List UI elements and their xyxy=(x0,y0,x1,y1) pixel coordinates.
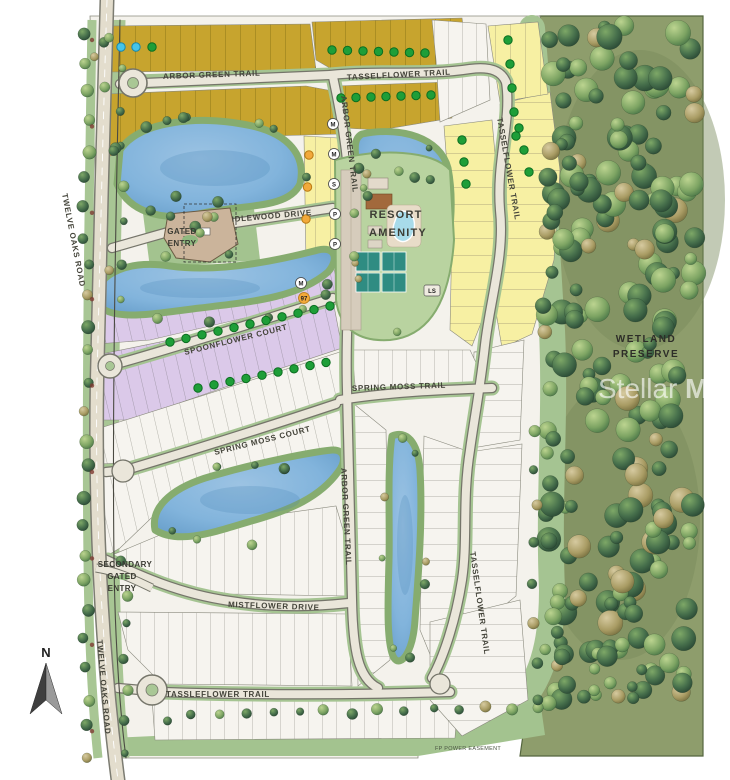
tree-icon xyxy=(83,345,93,355)
tree-icon xyxy=(585,297,610,322)
tree-icon xyxy=(84,260,94,270)
tree-icon xyxy=(645,138,661,154)
tree-icon xyxy=(321,290,331,300)
tree-icon xyxy=(412,450,419,457)
tree-icon xyxy=(659,404,683,428)
badge-m1: M xyxy=(331,123,336,129)
tree-icon xyxy=(604,677,616,689)
tree-icon xyxy=(163,717,172,726)
lot-status-dot-green xyxy=(510,108,518,116)
tree-icon xyxy=(619,52,637,70)
tree-icon xyxy=(546,266,559,279)
lot-status-dot-green xyxy=(520,146,528,154)
tree-icon xyxy=(371,149,381,159)
lot-status-dot-green xyxy=(515,124,523,132)
secondary-entry-label-3: ENTRY xyxy=(108,584,137,593)
tree-icon xyxy=(681,493,704,516)
tree-icon xyxy=(656,105,671,120)
tree-icon xyxy=(146,206,156,216)
tree-icon xyxy=(529,465,538,474)
tree-icon xyxy=(556,93,572,109)
bush-icon xyxy=(90,383,94,387)
lot-status-dot-green xyxy=(506,60,514,68)
tree-icon xyxy=(540,644,551,655)
lot-status-dot-green xyxy=(328,46,336,54)
tree-icon xyxy=(625,605,643,623)
tree-icon xyxy=(109,146,119,156)
tree-icon xyxy=(242,709,252,719)
tree-icon xyxy=(597,646,618,667)
tree-icon xyxy=(78,633,88,643)
power-easement-label: FP POWER EASEMENT xyxy=(435,746,501,752)
tree-icon xyxy=(77,200,89,212)
tree-icon xyxy=(610,531,623,544)
tree-icon xyxy=(631,155,647,171)
tree-icon xyxy=(78,28,90,40)
tree-icon xyxy=(422,558,430,566)
badge-p2: P xyxy=(333,243,337,249)
tree-icon xyxy=(659,653,679,673)
tree-icon xyxy=(680,281,698,299)
tree-icon xyxy=(350,209,359,218)
tree-icon xyxy=(202,212,212,222)
tree-icon xyxy=(186,710,195,719)
tree-icon xyxy=(506,704,518,716)
culdesac-bottom-east xyxy=(430,674,450,694)
tree-icon xyxy=(318,704,329,715)
tree-icon xyxy=(539,168,557,186)
tree-icon xyxy=(597,24,623,50)
tree-icon xyxy=(212,196,223,207)
lot-status-dot-orange xyxy=(303,183,311,191)
bush-icon xyxy=(90,297,94,301)
wetland-preserve-label-1: WETLAND xyxy=(616,334,677,345)
tree-icon xyxy=(393,328,401,336)
tree-icon xyxy=(426,175,435,184)
gated-entry-label-2: ENTRY xyxy=(168,239,197,248)
bush-icon xyxy=(90,211,94,215)
tree-icon xyxy=(527,579,537,589)
bush-icon xyxy=(90,643,94,647)
tree-icon xyxy=(661,441,678,458)
tree-icon xyxy=(81,84,94,97)
tree-icon xyxy=(349,251,359,261)
lot-status-dot-green xyxy=(258,371,266,379)
tree-icon xyxy=(163,116,172,125)
lot-status-dot-green xyxy=(512,132,520,140)
badge-97: 97 xyxy=(301,297,308,303)
lot-status-dot-green xyxy=(290,365,298,373)
tree-icon xyxy=(545,608,562,625)
tree-icon xyxy=(302,173,310,181)
lot-status-dot-green xyxy=(382,92,390,100)
secondary-entry-label-1: SECONDARY xyxy=(98,560,153,569)
wetland-preserve-label-2: PRESERVE xyxy=(613,349,679,360)
tree-icon xyxy=(398,434,407,443)
tree-icon xyxy=(565,500,578,513)
tree-icon xyxy=(84,115,95,126)
tree-icon xyxy=(570,284,582,296)
secondary-entry-label-2: GATED xyxy=(107,572,136,581)
tree-icon xyxy=(611,118,625,132)
tree-icon xyxy=(650,190,672,212)
tree-icon xyxy=(120,218,127,225)
tree-icon xyxy=(80,550,91,561)
tree-icon xyxy=(529,425,541,437)
tree-icon xyxy=(119,715,129,725)
tree-icon xyxy=(123,619,131,627)
lot-status-dot-green xyxy=(359,47,367,55)
tree-icon xyxy=(541,32,557,48)
tree-icon xyxy=(649,433,662,446)
tree-icon xyxy=(118,181,129,192)
tree-icon xyxy=(685,253,697,265)
tree-icon xyxy=(558,25,580,47)
watermark-mls: MLS xyxy=(685,373,730,404)
tree-icon xyxy=(560,449,574,463)
tree-icon xyxy=(541,533,557,549)
tree-icon xyxy=(363,170,372,179)
tree-icon xyxy=(554,649,570,665)
tree-icon xyxy=(547,204,563,220)
lot-status-dot-green xyxy=(230,323,238,331)
tree-icon xyxy=(627,682,637,692)
tree-icon xyxy=(570,590,587,607)
tree-icon xyxy=(611,689,625,703)
tree-icon xyxy=(589,89,604,104)
lot-status-dot-green xyxy=(525,168,533,176)
tree-icon xyxy=(532,500,543,511)
lot-status-dot-green xyxy=(210,381,218,389)
tree-icon xyxy=(178,112,189,123)
tree-icon xyxy=(637,665,648,676)
tree-icon xyxy=(676,598,698,620)
tree-icon xyxy=(363,191,373,201)
tree-icon xyxy=(347,709,358,720)
lot-status-dot-green xyxy=(214,327,222,335)
tree-icon xyxy=(551,626,564,639)
tree-icon xyxy=(82,753,92,763)
tree-icon xyxy=(104,33,113,42)
tree-icon xyxy=(355,275,362,282)
badge-p1: P xyxy=(333,213,337,219)
tree-icon xyxy=(77,491,91,505)
lot-status-dot-green xyxy=(246,320,254,328)
lot-status-dot-green xyxy=(508,84,516,92)
tree-icon xyxy=(166,212,175,221)
tree-icon xyxy=(596,160,621,185)
tree-icon xyxy=(105,266,114,275)
tree-icon xyxy=(100,82,110,92)
tree-icon xyxy=(81,320,95,334)
lot-status-dot-green xyxy=(278,313,286,321)
lot-status-dot-green xyxy=(326,302,334,310)
bush-icon xyxy=(90,124,94,128)
tree-icon xyxy=(681,261,706,286)
bush-icon xyxy=(90,556,94,560)
tree-icon xyxy=(672,626,696,650)
tree-icon xyxy=(629,190,649,210)
tree-icon xyxy=(533,695,543,705)
tree-icon xyxy=(535,298,551,314)
tree-icon xyxy=(213,463,221,471)
tree-icon xyxy=(390,645,397,652)
tree-icon xyxy=(635,239,655,259)
tree-icon xyxy=(611,570,634,593)
lot-status-dot-green xyxy=(242,374,250,382)
tree-icon xyxy=(569,116,583,130)
tree-icon xyxy=(77,573,90,586)
tree-icon xyxy=(576,387,594,405)
lot-status-dot-green xyxy=(148,43,156,51)
tree-icon xyxy=(589,664,600,675)
lot-status-dot-green xyxy=(412,91,420,99)
tree-icon xyxy=(685,228,705,248)
tree-icon xyxy=(121,750,128,757)
tree-icon xyxy=(679,172,703,196)
tree-icon xyxy=(528,617,540,629)
tree-icon xyxy=(251,462,258,469)
tree-icon xyxy=(572,339,593,360)
tree-icon xyxy=(80,662,90,672)
tree-icon xyxy=(379,555,385,561)
tree-icon xyxy=(624,298,648,322)
watermark-stellar: Stellar xyxy=(598,373,677,404)
tree-icon xyxy=(410,172,420,182)
lot-status-dot-green xyxy=(182,334,190,342)
tree-icon xyxy=(161,251,171,261)
tree-icon xyxy=(567,535,590,558)
lot-status-dot-green xyxy=(405,48,413,56)
tree-icon xyxy=(542,142,560,160)
tree-icon xyxy=(542,476,558,492)
tree-icon xyxy=(90,53,98,61)
tree-icon xyxy=(546,431,561,446)
tree-icon xyxy=(204,317,215,328)
tree-icon xyxy=(581,239,596,254)
tree-icon xyxy=(480,701,491,712)
tree-icon xyxy=(455,705,464,714)
tree-icon xyxy=(540,492,565,517)
lot-status-dot-green xyxy=(322,358,330,366)
tree-icon xyxy=(360,184,367,191)
tree-icon xyxy=(215,710,224,719)
tree-icon xyxy=(152,313,162,323)
tree-icon xyxy=(255,119,264,128)
tree-icon xyxy=(650,561,668,579)
tree-icon xyxy=(371,703,383,715)
tree-icon xyxy=(529,537,539,547)
tree-icon xyxy=(562,156,577,171)
badge-s: S xyxy=(332,183,336,189)
lot-status-dot-green xyxy=(390,48,398,56)
tree-icon xyxy=(651,267,676,292)
tree-icon xyxy=(195,228,204,237)
lot-status-dot-green xyxy=(294,309,302,317)
badge-lift-station: LS xyxy=(428,289,436,295)
tree-icon xyxy=(541,447,554,460)
tree-icon xyxy=(405,653,415,663)
tree-icon xyxy=(117,296,124,303)
tree-icon xyxy=(615,638,630,653)
tree-icon xyxy=(552,353,576,377)
tree-icon xyxy=(193,536,201,544)
tree-icon xyxy=(665,20,690,45)
badge-m2: M xyxy=(332,153,337,159)
tree-icon xyxy=(79,406,89,416)
tree-icon xyxy=(322,279,332,289)
tree-icon xyxy=(117,260,127,270)
lot-status-dot-green xyxy=(421,49,429,57)
lot-status-dot-cyan xyxy=(117,43,125,51)
tree-icon xyxy=(247,540,257,550)
tree-icon xyxy=(558,676,576,694)
tree-icon xyxy=(686,86,702,102)
bush-icon xyxy=(90,729,94,733)
lot-status-dot-green xyxy=(306,361,314,369)
tree-icon xyxy=(565,310,583,328)
tree-icon xyxy=(420,579,430,589)
resort-amenity-label-2: AMENITY xyxy=(369,227,427,239)
gated-entry-label-1: GATED xyxy=(167,227,196,236)
lot-status-dot-green xyxy=(310,305,318,313)
tree-icon xyxy=(553,229,574,250)
tree-icon xyxy=(119,65,126,72)
tree-icon xyxy=(621,91,645,115)
tree-icon xyxy=(550,595,565,610)
tree-icon xyxy=(570,172,589,191)
badge-m3: M xyxy=(299,282,304,288)
tree-icon xyxy=(169,527,176,534)
lot-status-dot-green xyxy=(352,93,360,101)
tree-icon xyxy=(426,145,432,151)
lot-status-dot-orange xyxy=(305,151,313,159)
bush-icon xyxy=(90,470,94,474)
tree-icon xyxy=(141,121,152,132)
tree-icon xyxy=(648,66,672,90)
lot-status-dot-green xyxy=(194,384,202,392)
tree-icon xyxy=(579,573,597,591)
tree-icon xyxy=(394,167,403,176)
lot-status-dot-green xyxy=(427,91,435,99)
tree-icon xyxy=(280,464,289,473)
tree-icon xyxy=(538,325,552,339)
lot-status-dot-green xyxy=(274,368,282,376)
amenity-building xyxy=(368,240,382,248)
watermark: Stellar MLS xyxy=(598,373,730,404)
lot-status-dot-green xyxy=(458,136,466,144)
tree-icon xyxy=(80,435,94,449)
tree-icon xyxy=(78,171,89,182)
tree-icon xyxy=(225,250,233,258)
lot-group-white-bottom xyxy=(152,698,458,740)
tree-icon xyxy=(625,463,648,486)
lot-status-dot-green xyxy=(262,316,270,324)
clubhouse-building xyxy=(368,178,388,189)
tree-icon xyxy=(673,673,693,693)
bush-icon xyxy=(90,38,94,42)
north-label: N xyxy=(41,645,50,660)
tree-icon xyxy=(82,459,95,472)
tree-icon xyxy=(610,131,628,149)
tree-icon xyxy=(644,634,665,655)
tree-icon xyxy=(653,508,673,528)
tree-icon xyxy=(81,719,93,731)
tree-icon xyxy=(399,707,408,716)
lot-status-dot-green xyxy=(367,93,375,101)
resort-amenity-label-1: RESORT xyxy=(369,209,422,221)
lot-status-dot-green xyxy=(226,377,234,385)
tree-icon xyxy=(618,497,643,522)
tree-icon xyxy=(82,604,94,616)
tree-icon xyxy=(605,597,618,610)
tree-icon xyxy=(118,654,128,664)
lot-status-dot-cyan xyxy=(132,43,140,51)
lot-status-dot-green xyxy=(198,331,206,339)
tree-icon xyxy=(577,690,590,703)
tree-icon xyxy=(556,58,570,72)
lot-status-dot-green xyxy=(504,36,512,44)
street-label-tassleflower-bottom: TASSLEFLOWER TRAIL xyxy=(166,690,270,699)
tree-icon xyxy=(683,537,696,550)
tree-icon xyxy=(77,519,89,531)
culdesac-spring-moss xyxy=(112,460,134,482)
lot-status-dot-green xyxy=(166,338,174,346)
tree-icon xyxy=(84,695,95,706)
tree-icon xyxy=(116,107,125,116)
tree-icon xyxy=(532,658,543,669)
tree-icon xyxy=(430,704,438,712)
lot-status-dot-green xyxy=(343,46,351,54)
tree-icon xyxy=(652,461,666,475)
tree-icon xyxy=(270,708,278,716)
tree-icon xyxy=(83,146,97,160)
site-plan-canvas: M M S P P M 97 LS ARBOR GREEN TRAIL TASS… xyxy=(0,0,730,780)
tree-icon xyxy=(565,466,583,484)
tree-icon xyxy=(296,708,304,716)
tree-icon xyxy=(171,191,182,202)
tree-icon xyxy=(685,103,705,123)
tree-icon xyxy=(655,224,674,243)
community-site-plan-map: M M S P P M 97 LS ARBOR GREEN TRAIL TASS… xyxy=(0,0,730,780)
lot-status-dot-green xyxy=(397,92,405,100)
tree-icon xyxy=(123,685,134,696)
tree-icon xyxy=(616,417,640,441)
lot-status-dot-green xyxy=(460,158,468,166)
tree-icon xyxy=(627,692,639,704)
lot-status-dot-green xyxy=(462,180,470,188)
tree-icon xyxy=(570,59,587,76)
tree-icon xyxy=(585,409,609,433)
tree-icon xyxy=(543,381,558,396)
lot-status-dot-green xyxy=(374,47,382,55)
tree-icon xyxy=(80,58,91,69)
tree-icon xyxy=(270,125,278,133)
tree-icon xyxy=(380,493,388,501)
